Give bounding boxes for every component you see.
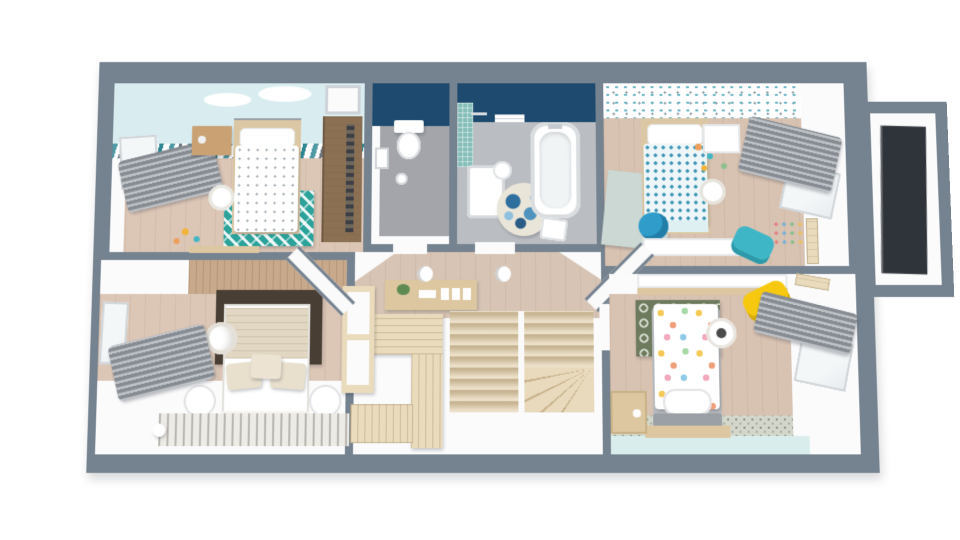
- toy: [701, 165, 707, 171]
- bathtub: [530, 122, 580, 218]
- floor-plan: [86, 62, 880, 473]
- stair-flight-right: [524, 311, 594, 368]
- room-bathroom: [457, 83, 597, 244]
- bed-base-plate: [645, 426, 730, 438]
- nightstand: [192, 126, 232, 155]
- picture-frame: [375, 147, 389, 169]
- plant: [397, 284, 410, 295]
- toy-chest-knob: [633, 409, 641, 417]
- wardrobe-door: [347, 340, 370, 385]
- waste-bin: [396, 173, 408, 185]
- shower-head: [471, 112, 487, 115]
- bathroom-door-opening: [475, 242, 515, 254]
- pillow: [250, 354, 281, 379]
- wall-stickers: [772, 220, 805, 248]
- stair-flight-left: [450, 311, 519, 412]
- room-bedroom-top-left: [109, 83, 364, 252]
- drawer-front: [441, 288, 449, 300]
- room-master-bedroom: [95, 260, 347, 454]
- slatted-platform: [350, 404, 413, 443]
- beige-blanket: [225, 308, 308, 358]
- console-table: [385, 280, 477, 310]
- toy-chest: [610, 391, 647, 434]
- duvet: [234, 146, 299, 233]
- cloud-icon: [258, 86, 311, 102]
- blanket-roll: [663, 389, 712, 416]
- striped-rug: [158, 413, 349, 446]
- open-wardrobe: [321, 116, 362, 242]
- staircase: [450, 311, 595, 412]
- toy: [707, 153, 713, 159]
- pendant-sphere-lamp: [706, 318, 737, 348]
- pillow: [647, 124, 703, 145]
- ceiling-light: [495, 266, 511, 282]
- toy: [721, 163, 727, 169]
- stair-winders: [524, 368, 594, 413]
- bathtub-basin: [539, 132, 571, 209]
- white-nightstand: [702, 124, 740, 153]
- bay-glazing-panel: [880, 125, 927, 274]
- nightstand-lamp: [198, 136, 206, 144]
- double-bed: [222, 304, 311, 419]
- bath-tap: [548, 124, 562, 129]
- drawer-front: [452, 288, 460, 300]
- pedestal-sink: [493, 161, 512, 180]
- growth-chart: [806, 218, 819, 264]
- cloud-icon: [204, 93, 252, 107]
- closet-niche: [325, 85, 361, 114]
- floor-plan-stage: [0, 0, 960, 540]
- stair-rail: [518, 311, 524, 412]
- navy-accent-wall: [457, 83, 595, 122]
- room-wc: [371, 83, 449, 244]
- closet-side-unit: [411, 354, 443, 448]
- laundry-basket: [539, 217, 568, 242]
- room-bedroom-bottom-right: [609, 274, 861, 454]
- low-shelf: [189, 246, 259, 253]
- sphere-lamp: [699, 179, 725, 205]
- drawer-front: [463, 288, 471, 300]
- toy: [695, 144, 702, 151]
- towel-rail: [495, 114, 525, 122]
- room-bedroom-top-right: [603, 83, 849, 266]
- wc-door-opening: [393, 242, 427, 254]
- mint-wall-band: [611, 436, 810, 454]
- tray: [419, 290, 436, 298]
- ceiling-light: [417, 266, 433, 282]
- hanging-clothes: [345, 124, 354, 232]
- toilet-bowl: [397, 132, 421, 159]
- owl-plush: [638, 212, 668, 240]
- lamp-opening: [716, 328, 726, 338]
